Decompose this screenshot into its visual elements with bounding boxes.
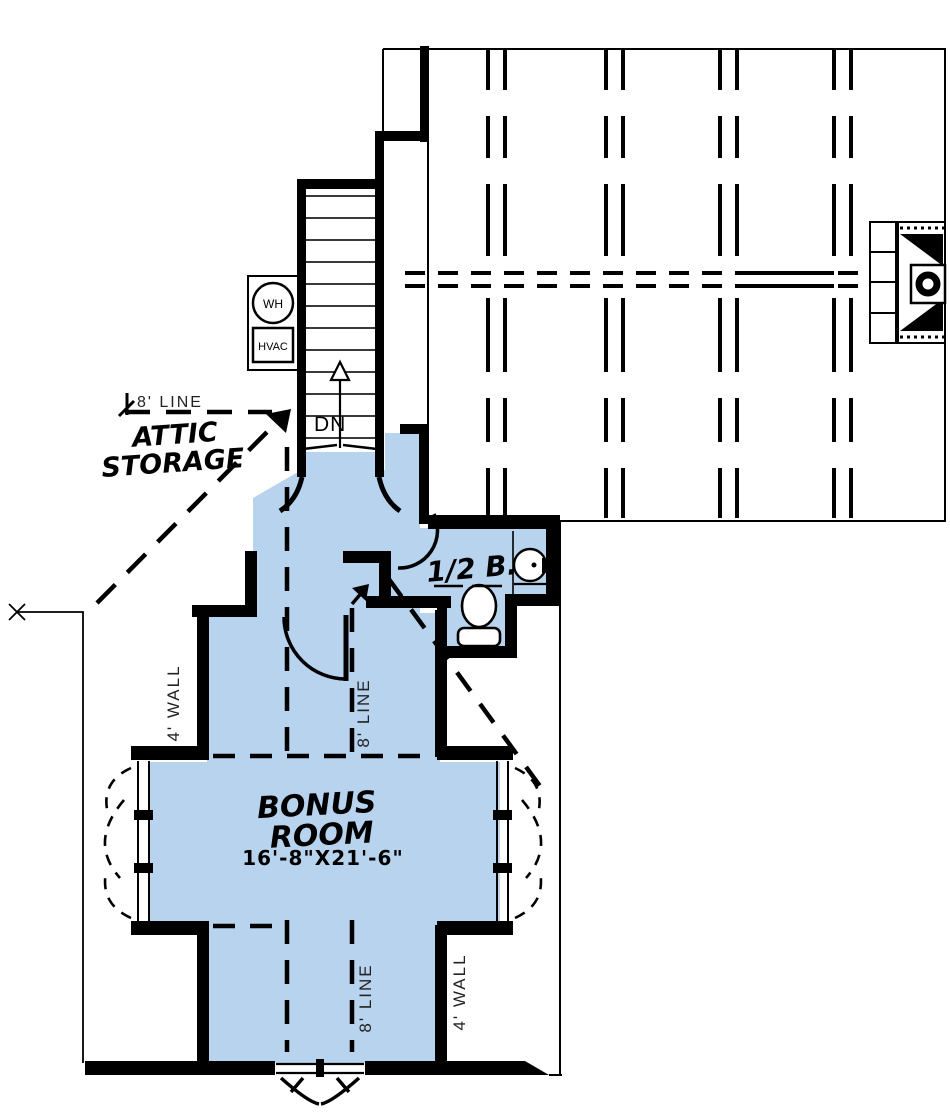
sink-icon bbox=[514, 549, 546, 581]
sink-faucet bbox=[542, 558, 551, 573]
attic-line-label: 8' LINE bbox=[137, 394, 203, 411]
floor-plan: DN WH HVAC 8' LINE ATTIC STORAGE 1/2 B. … bbox=[0, 0, 950, 1119]
flue-icon bbox=[919, 275, 937, 293]
line-8ft-center-label: 8' LINE bbox=[354, 678, 373, 747]
chimney-detail bbox=[870, 222, 945, 343]
toilet-icon bbox=[462, 585, 496, 627]
stair-direction-label: DN bbox=[314, 413, 346, 436]
wall-4ft-left-label: 4' WALL bbox=[164, 664, 183, 741]
line-8ft-bottom-label: 8' LINE bbox=[356, 963, 375, 1032]
wall-4ft-right-label: 4' WALL bbox=[450, 953, 469, 1030]
bonus-room-dimensions: 16'-8"X21'-6" bbox=[242, 846, 404, 870]
toilet-tank bbox=[458, 628, 500, 646]
utility-closet bbox=[248, 276, 298, 370]
water-heater-label: WH bbox=[263, 297, 283, 311]
hvac-label: HVAC bbox=[258, 341, 288, 353]
